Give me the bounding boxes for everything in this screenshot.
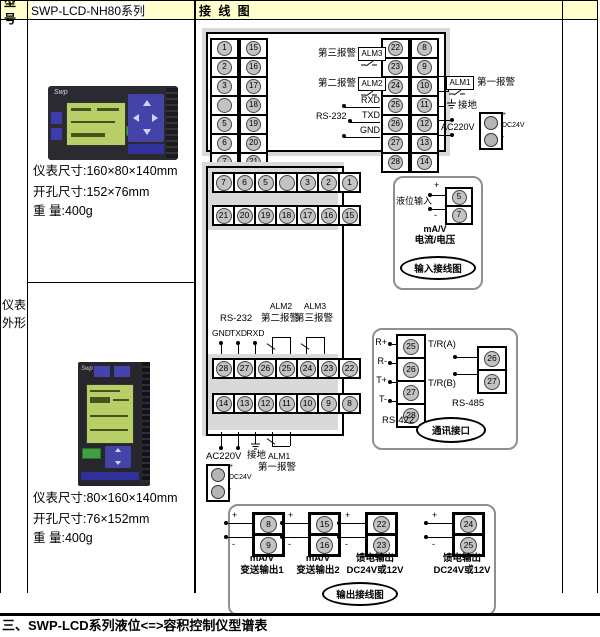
terminal: 9 bbox=[417, 60, 432, 75]
wire-dot bbox=[450, 133, 454, 137]
comm-caption: 通讯接口 bbox=[416, 417, 486, 443]
terminal-cell: 17 bbox=[239, 76, 268, 97]
wire-dot bbox=[236, 446, 240, 450]
terminal-cell: 23 bbox=[317, 358, 340, 379]
lcd-text-line bbox=[71, 108, 91, 111]
rs232-label: RS-232 bbox=[220, 314, 252, 324]
front-button bbox=[51, 112, 62, 124]
terminal-row: 765321 bbox=[212, 172, 361, 193]
alm2-tag: ALM2 bbox=[358, 77, 386, 91]
terminal-cell: 26 bbox=[396, 357, 426, 382]
terminal: 27 bbox=[403, 385, 419, 401]
terminal-cell: 13 bbox=[410, 133, 439, 154]
terminal: 2 bbox=[321, 175, 337, 191]
lcd-tag-button bbox=[82, 448, 101, 459]
terminal-cell: 15 bbox=[338, 205, 361, 226]
terminal: 14 bbox=[417, 155, 432, 170]
relay-contact-icon bbox=[360, 60, 378, 68]
terminal-cell: 27 bbox=[233, 358, 256, 379]
terminal bbox=[279, 175, 295, 191]
terminal-cell: 18 bbox=[239, 95, 268, 116]
lcd-text-line bbox=[71, 121, 115, 123]
terminal-cell: 27 bbox=[381, 133, 410, 154]
terminal: 10 bbox=[300, 396, 316, 412]
rs422-pin-label: T- bbox=[373, 395, 387, 405]
output-label-line1: 馈电输出 bbox=[424, 554, 500, 564]
terminal: 28 bbox=[388, 155, 403, 170]
terminal: 1 bbox=[217, 41, 232, 56]
rs485-terminals: 2627 bbox=[477, 346, 507, 394]
terminal bbox=[211, 468, 225, 482]
level-input-label: 液位输入 bbox=[396, 197, 432, 207]
wire bbox=[339, 537, 365, 538]
terminal: 15 bbox=[342, 208, 358, 224]
keypad bbox=[105, 446, 131, 468]
device-side-vents bbox=[166, 88, 178, 158]
terminal: 27 bbox=[237, 361, 253, 377]
terminal: 23 bbox=[373, 537, 390, 554]
terminal: 18 bbox=[246, 98, 261, 113]
terminal-cell: 5 bbox=[445, 187, 473, 207]
terminal-cell: 22 bbox=[338, 358, 361, 379]
minus-sign: - bbox=[434, 211, 437, 221]
wire bbox=[290, 432, 291, 446]
device2-weight: 重 量:400g bbox=[33, 527, 93, 546]
header-model-cell: 型号 bbox=[1, 1, 28, 19]
terminal bbox=[211, 485, 225, 499]
wire bbox=[272, 446, 290, 447]
rs422-terminals: 25262728 bbox=[396, 334, 426, 428]
wire bbox=[282, 537, 308, 538]
terminal: 5 bbox=[452, 190, 467, 205]
output-pair: + 24 25 - 馈电输出 DC24V或12V bbox=[424, 512, 500, 582]
terminal: 8 bbox=[342, 396, 358, 412]
terminal-cell: 5 bbox=[254, 172, 277, 193]
terminal: 6 bbox=[237, 175, 253, 191]
device1-cutout: 开孔尺寸:152×76mm bbox=[33, 181, 149, 200]
terminal: 7 bbox=[452, 208, 467, 223]
device1-weight: 重 量:400g bbox=[33, 200, 93, 219]
header-series-cell: SWP-LCD-NH80系列 bbox=[28, 1, 196, 19]
terminal-column: 123567 bbox=[210, 38, 239, 173]
terminal: 21 bbox=[216, 208, 232, 224]
device-photo-vertical: Swp bbox=[78, 362, 150, 486]
terminal: 13 bbox=[417, 136, 432, 151]
terminal: 22 bbox=[388, 41, 403, 56]
device-photo-horizontal: Swp bbox=[48, 86, 178, 160]
terminal-cell: 28 bbox=[212, 358, 235, 379]
terminal: 19 bbox=[258, 208, 274, 224]
sidebar-label: 仪表外形 bbox=[2, 296, 26, 332]
lcd-text-line bbox=[90, 415, 128, 417]
terminal: 18 bbox=[279, 208, 295, 224]
terminal-cell: 10 bbox=[410, 76, 439, 97]
terminal-row: 141312111098 bbox=[212, 393, 361, 414]
alm3-tag: ALM3 bbox=[358, 47, 386, 61]
terminal-cell: 12 bbox=[254, 393, 277, 414]
terminal: 26 bbox=[484, 351, 500, 367]
terminal: 2 bbox=[217, 60, 232, 75]
up-arrow-icon bbox=[115, 448, 121, 452]
input-caption: 输入接线图 bbox=[400, 256, 476, 280]
alm2-tag: ALM2 bbox=[262, 302, 300, 311]
txd-label: TXD bbox=[350, 111, 380, 123]
terminal-row: 21201918171615 bbox=[212, 205, 361, 226]
terminal: 11 bbox=[279, 396, 295, 412]
terminal: 20 bbox=[237, 208, 253, 224]
wire bbox=[456, 374, 477, 375]
model-strip bbox=[128, 144, 164, 154]
alarm1-label: 第一报警 bbox=[258, 463, 296, 473]
terminal-cell: 11 bbox=[275, 393, 298, 414]
terminal-cell: 2 bbox=[317, 172, 340, 193]
terminal-column: 891011121314 bbox=[410, 38, 439, 173]
lcd-screen bbox=[86, 384, 134, 444]
relay-contact-icon bbox=[448, 89, 466, 97]
lcd-screen bbox=[66, 102, 126, 146]
rs422-pin-label: R- bbox=[373, 357, 387, 367]
terminal-cell: 7 bbox=[445, 205, 473, 225]
plus-sign: + bbox=[502, 111, 506, 119]
minus-sign: - bbox=[432, 540, 435, 550]
terminal: 25 bbox=[403, 339, 419, 355]
series-label: SWP-LCD-NH80系列 bbox=[31, 2, 145, 19]
plus-sign: + bbox=[229, 463, 233, 471]
terminal: 24 bbox=[388, 79, 403, 94]
dc24v-label: DC24V bbox=[502, 122, 525, 130]
output-terminals: 22 23 bbox=[365, 512, 398, 557]
brand-label: Swp bbox=[54, 89, 68, 97]
terminal-cell: 26 bbox=[381, 114, 410, 135]
minus-sign: - bbox=[288, 540, 291, 550]
terminal-cell: 24 bbox=[296, 358, 319, 379]
terminal-cell: 5 bbox=[210, 114, 239, 135]
terminal-cell: 16 bbox=[317, 205, 340, 226]
rs422-pin-label: R+ bbox=[373, 338, 387, 348]
terminal bbox=[217, 98, 232, 113]
terminal: 24 bbox=[460, 516, 477, 533]
alarm3-label: 第三报警 bbox=[312, 49, 356, 59]
terminal: 26 bbox=[388, 117, 403, 132]
minus-sign: - bbox=[232, 540, 235, 550]
terminal-cell: 9 bbox=[410, 57, 439, 78]
plus-sign: + bbox=[232, 511, 237, 521]
terminal-cell: 26 bbox=[254, 358, 277, 379]
terminal-cell: 25 bbox=[381, 95, 410, 116]
terminal-cell bbox=[275, 172, 298, 193]
minus-sign: - bbox=[229, 486, 231, 494]
output-label-line2: DC24V或12V bbox=[337, 566, 413, 576]
table-border bbox=[562, 0, 563, 593]
ac-power-label: AC220V bbox=[206, 452, 241, 462]
terminal: 20 bbox=[246, 136, 261, 151]
terminal-cell: 25 bbox=[396, 334, 426, 359]
wire bbox=[306, 337, 324, 338]
wiring-label: 接 线 图 bbox=[199, 2, 252, 19]
terminal: 16 bbox=[321, 208, 337, 224]
keypad bbox=[128, 94, 164, 142]
terminal: 23 bbox=[388, 60, 403, 75]
ac-power-label: AC220V bbox=[441, 123, 475, 133]
brand-label: Swp bbox=[81, 366, 93, 373]
alm1-tag: ALM1 bbox=[446, 76, 474, 90]
wire bbox=[272, 337, 290, 338]
terminal-cell: 27 bbox=[396, 380, 426, 405]
down-arrow-icon bbox=[143, 129, 151, 135]
header-wiring-cell: 接 线 图 bbox=[196, 1, 563, 19]
terminal: 16 bbox=[316, 537, 333, 554]
signal-type-label: mA/V bbox=[409, 225, 461, 235]
wire bbox=[426, 537, 452, 538]
rs422-pin-label: T+ bbox=[373, 376, 387, 386]
terminal: 6 bbox=[217, 136, 232, 151]
terminal: 15 bbox=[316, 516, 333, 533]
terminal-cell: 10 bbox=[296, 393, 319, 414]
lcd-text-line bbox=[90, 397, 110, 403]
lcd-text-line bbox=[90, 429, 128, 431]
relay-contact-icon bbox=[272, 432, 273, 446]
device2-cutout: 开孔尺寸:76×152mm bbox=[33, 508, 149, 527]
terminal-cell: 17 bbox=[296, 205, 319, 226]
terminal: 26 bbox=[403, 362, 419, 378]
alm1-tag: ALM1 bbox=[268, 452, 290, 461]
table-border bbox=[0, 0, 1, 593]
alarm2-label: 第二报警 bbox=[312, 79, 356, 89]
terminal-cell: 1 bbox=[210, 38, 239, 59]
terminal-cell: 11 bbox=[410, 95, 439, 116]
plus-sign: + bbox=[432, 511, 437, 521]
terminal: 26 bbox=[258, 361, 274, 377]
terminal: 5 bbox=[258, 175, 274, 191]
terminal-cell bbox=[210, 95, 239, 116]
terminal: 12 bbox=[258, 396, 274, 412]
device-side-vents bbox=[142, 362, 150, 482]
table-border bbox=[194, 0, 196, 593]
table-header-row: 型号 SWP-LCD-NH80系列 接 线 图 bbox=[0, 0, 598, 20]
minus-sign: - bbox=[502, 134, 504, 142]
footer-title: 三、SWP-LCD系列液位<=>容积控制仪型谱表 bbox=[2, 619, 267, 633]
terminal: 8 bbox=[260, 516, 277, 533]
header-empty-cell bbox=[563, 1, 597, 19]
terminal: 10 bbox=[417, 79, 432, 94]
model-label: 型号 bbox=[4, 0, 27, 27]
plus-sign: + bbox=[288, 511, 293, 521]
terminal-cell: 1 bbox=[338, 172, 361, 193]
rs485-label: RS-485 bbox=[452, 399, 484, 409]
terminal: 14 bbox=[216, 396, 232, 412]
terminal: 25 bbox=[388, 98, 403, 113]
ground-icon bbox=[446, 99, 457, 109]
terminal bbox=[484, 133, 498, 147]
terminal-cell: 26 bbox=[477, 346, 507, 371]
terminal: 5 bbox=[217, 117, 232, 132]
dc24v-terminal-block bbox=[479, 112, 503, 150]
terminal: 28 bbox=[216, 361, 232, 377]
rs485-line-b-label: T/R(B) bbox=[428, 379, 456, 389]
wire bbox=[431, 195, 445, 196]
wire bbox=[437, 106, 446, 107]
input-terminals: 5 7 bbox=[445, 187, 473, 225]
wire-dot bbox=[219, 446, 223, 450]
table-border bbox=[597, 0, 598, 593]
output-terminals: 24 25 bbox=[452, 512, 485, 557]
right-arrow-icon bbox=[152, 114, 158, 122]
model-strip bbox=[81, 472, 139, 480]
terminal: 16 bbox=[246, 60, 261, 75]
signal-type-label2: 电流/电压 bbox=[404, 236, 466, 246]
rs485-line-a-label: T/R(A) bbox=[428, 340, 456, 350]
terminal: 23 bbox=[321, 361, 337, 377]
terminal-row: 28272625242322 bbox=[212, 358, 361, 379]
plus-sign: + bbox=[345, 511, 350, 521]
terminal: 22 bbox=[342, 361, 358, 377]
wire bbox=[226, 537, 252, 538]
dc24v-terminal-block bbox=[206, 464, 230, 502]
terminal-cell: 28 bbox=[381, 152, 410, 173]
terminal bbox=[484, 116, 498, 130]
lcd-text-line bbox=[113, 399, 129, 401]
terminal: 25 bbox=[460, 537, 477, 554]
wire bbox=[339, 523, 365, 524]
output-pair: + 22 23 - 馈电输出 DC24V或12V bbox=[337, 512, 413, 582]
terminal: 27 bbox=[484, 374, 500, 390]
output-label-line2: DC24V或12V bbox=[424, 566, 500, 576]
front-button bbox=[114, 366, 130, 377]
wire bbox=[456, 357, 477, 358]
terminal: 8 bbox=[417, 41, 432, 56]
terminal: 9 bbox=[260, 537, 277, 554]
terminal-cell: 21 bbox=[212, 205, 235, 226]
terminal: 25 bbox=[279, 361, 295, 377]
table-border bbox=[27, 282, 195, 283]
terminal: 17 bbox=[246, 79, 261, 94]
terminal: 12 bbox=[417, 117, 432, 132]
alarm3-label: 第三报警 bbox=[295, 314, 333, 324]
terminal-cell: 3 bbox=[296, 172, 319, 193]
down-arrow-icon bbox=[115, 461, 121, 465]
table-border bbox=[27, 0, 28, 593]
terminal-cell: 6 bbox=[210, 133, 239, 154]
terminal-cell: 19 bbox=[254, 205, 277, 226]
terminal: 1 bbox=[342, 175, 358, 191]
terminal: 3 bbox=[217, 79, 232, 94]
terminal: 3 bbox=[300, 175, 316, 191]
lcd-text-line bbox=[97, 108, 119, 111]
dc24v-label: DC24V bbox=[229, 474, 252, 482]
terminal: 17 bbox=[300, 208, 316, 224]
rs232-label: RS-232 bbox=[316, 112, 347, 122]
rxd-label: RXD bbox=[242, 329, 269, 338]
rxd-label: RXD bbox=[344, 96, 380, 108]
terminal-cell: 20 bbox=[239, 133, 268, 154]
terminal-column: 15161718192021 bbox=[239, 38, 268, 173]
wire bbox=[226, 523, 252, 524]
terminal-cell: 8 bbox=[338, 393, 361, 414]
minus-sign: - bbox=[345, 540, 348, 550]
terminal-cell: 25 bbox=[275, 358, 298, 379]
alarm1-label: 第一报警 bbox=[477, 78, 515, 88]
terminal-cell: 12 bbox=[410, 114, 439, 135]
front-button bbox=[51, 128, 62, 140]
ground-label: 接地 bbox=[247, 451, 266, 461]
terminal-cell: 6 bbox=[233, 172, 256, 193]
footer-divider bbox=[0, 613, 600, 616]
rs422-label: RS-422 bbox=[382, 416, 414, 426]
up-arrow-icon bbox=[143, 100, 151, 106]
terminal-cell: 16 bbox=[239, 57, 268, 78]
output-label-line1: 馈电输出 bbox=[337, 554, 413, 564]
device1-size: 仪表尺寸:160×80×140mm bbox=[33, 160, 178, 179]
lcd-text-line bbox=[90, 390, 120, 392]
terminal-cell: 27 bbox=[477, 369, 507, 394]
front-button bbox=[94, 366, 110, 377]
terminal-cell: 3 bbox=[210, 76, 239, 97]
terminal-cell: 20 bbox=[233, 205, 256, 226]
terminal-cell: 13 bbox=[233, 393, 256, 414]
terminal: 13 bbox=[237, 396, 253, 412]
lcd-text-line bbox=[71, 133, 105, 137]
terminal: 9 bbox=[321, 396, 337, 412]
terminal: 24 bbox=[300, 361, 316, 377]
terminal: 27 bbox=[388, 136, 403, 151]
terminal-cell: 14 bbox=[212, 393, 235, 414]
gnd-label: GND bbox=[344, 126, 380, 138]
terminal-cell: 9 bbox=[317, 393, 340, 414]
terminal-cell: 15 bbox=[239, 38, 268, 59]
terminal-cell: 2 bbox=[210, 57, 239, 78]
terminal: 15 bbox=[246, 41, 261, 56]
output-caption: 输出接线图 bbox=[322, 582, 398, 606]
ground-label: 接地 bbox=[458, 101, 477, 111]
plus-sign: + bbox=[434, 181, 439, 191]
terminal-cell: 7 bbox=[212, 172, 235, 193]
alarm2-label: 第二报警 bbox=[261, 314, 299, 324]
terminal: 19 bbox=[246, 117, 261, 132]
wire bbox=[426, 523, 452, 524]
device2-size: 仪表尺寸:80×160×140mm bbox=[33, 487, 178, 506]
left-arrow-icon bbox=[133, 114, 139, 122]
datasheet-page: 型号 SWP-LCD-NH80系列 接 线 图 仪表外形 Swp bbox=[0, 0, 600, 637]
terminal-cell: 19 bbox=[239, 114, 268, 135]
alm3-tag: ALM3 bbox=[296, 302, 334, 311]
ground-icon bbox=[250, 440, 261, 450]
wire bbox=[282, 523, 308, 524]
terminal: 11 bbox=[417, 98, 432, 113]
terminal: 22 bbox=[373, 516, 390, 533]
terminal-cell: 18 bbox=[275, 205, 298, 226]
terminal-cell: 14 bbox=[410, 152, 439, 173]
terminal: 7 bbox=[216, 175, 232, 191]
terminal-cell: 8 bbox=[410, 38, 439, 59]
